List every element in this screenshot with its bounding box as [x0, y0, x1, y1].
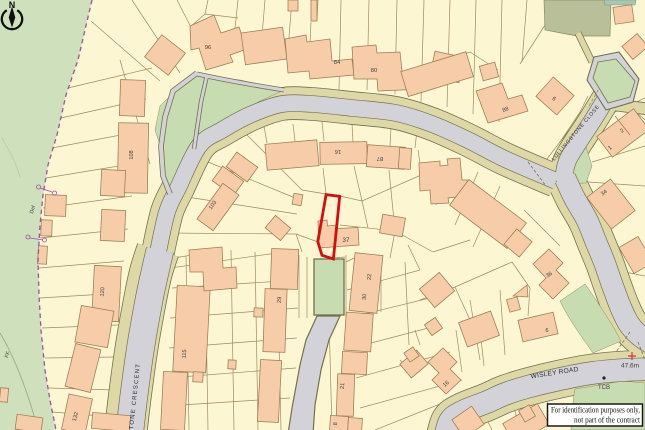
svg-text:96: 96: [205, 45, 211, 51]
svg-text:N: N: [9, 0, 16, 10]
svg-text:16: 16: [335, 148, 341, 154]
svg-text:47.6m: 47.6m: [621, 363, 639, 370]
svg-text:120: 120: [100, 287, 107, 297]
svg-text:29: 29: [277, 297, 284, 304]
svg-text:37: 37: [343, 237, 350, 244]
svg-text:8: 8: [333, 422, 339, 426]
svg-text:For identification purposes on: For identification purposes only,: [551, 405, 640, 415]
svg-text:not part of the contract: not part of the contract: [574, 415, 641, 425]
svg-text:21: 21: [340, 383, 347, 390]
svg-text:6: 6: [545, 328, 548, 334]
svg-text:108: 108: [129, 150, 135, 159]
svg-text:87: 87: [377, 155, 383, 161]
svg-text:22: 22: [367, 274, 374, 281]
svg-text:84: 84: [334, 60, 341, 66]
svg-text:30: 30: [362, 294, 369, 301]
svg-text:115: 115: [182, 349, 188, 358]
svg-text:TCB: TCB: [598, 385, 610, 391]
svg-text:80: 80: [371, 68, 377, 74]
